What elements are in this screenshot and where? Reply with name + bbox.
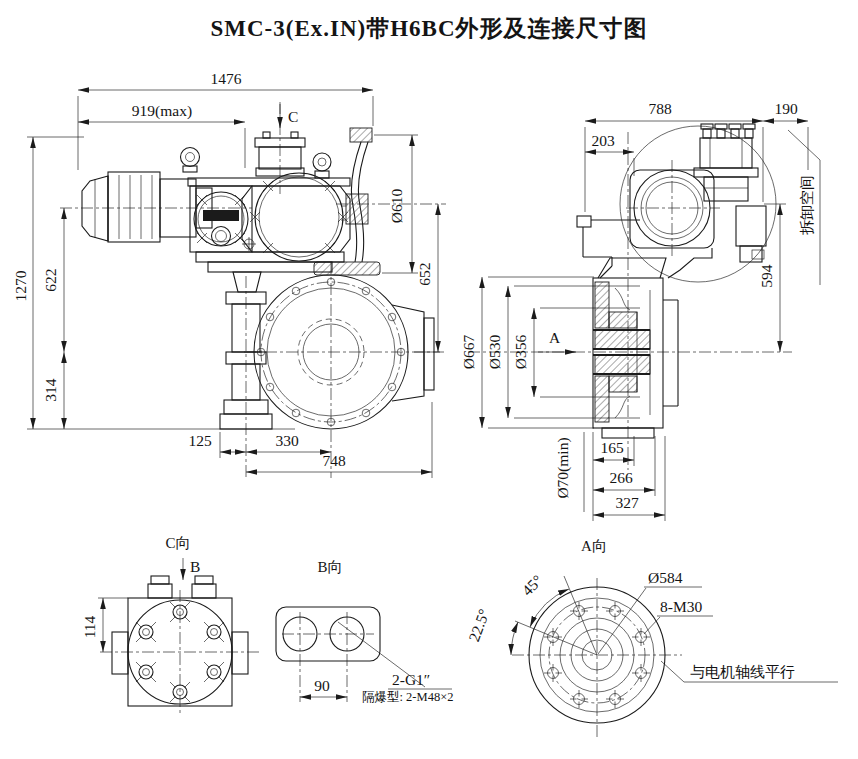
- dim-314: 314: [42, 378, 59, 402]
- dim-22-5deg: 22.5°: [465, 607, 492, 644]
- dim-530: Ø530: [486, 335, 503, 370]
- dim-667: Ø667: [460, 335, 477, 370]
- handwheel-grip: [314, 262, 380, 275]
- dim-266: 266: [609, 469, 633, 486]
- dim-356: Ø356: [512, 335, 529, 370]
- dim-125: 125: [188, 432, 212, 449]
- dim-90: 90: [314, 677, 330, 694]
- dim-165: 165: [600, 439, 624, 456]
- dim-114: 114: [81, 615, 98, 638]
- dim-45deg: 45°: [518, 571, 545, 598]
- section-c-label: C: [288, 108, 298, 125]
- dim-584: Ø584: [648, 569, 683, 586]
- view-c-label: C向: [165, 535, 190, 551]
- page-title: SMC-3(Ex.IN)带H6BC外形及连接尺寸图: [210, 16, 647, 41]
- handwheel-hub: [346, 194, 368, 224]
- dim-70-min: Ø70(min): [554, 437, 572, 498]
- gear-housing: [242, 186, 350, 252]
- dim-330: 330: [275, 432, 299, 449]
- axis-parallel-note: 与电机轴线平行: [690, 664, 795, 680]
- drawing-sheet: SMC-3(Ex.IN)带H6BC外形及连接尺寸图: [0, 0, 858, 759]
- section-b-label: B: [190, 558, 200, 575]
- bolt-spec: 8-M30: [660, 598, 702, 615]
- dim-610: Ø610: [388, 189, 405, 224]
- view-a: A向 45° 22.5° Ø584 8-M30 与电机轴线平行: [465, 538, 838, 738]
- dim-652: 652: [416, 262, 433, 285]
- side-view-dimensions: 788 190 203 拆卸空间 594 Ø667 Ø530 Ø356 A Ø7…: [460, 100, 820, 521]
- dim-622: 622: [42, 268, 59, 291]
- view-a-label: A向: [581, 538, 607, 554]
- section-a-label: A: [549, 329, 561, 346]
- dim-327: 327: [615, 494, 639, 511]
- flameproof-note: 隔爆型: 2-M48×2: [362, 690, 453, 704]
- lifting-eye: [181, 148, 200, 167]
- dim-190: 190: [774, 100, 798, 117]
- front-view: [27, 102, 446, 478]
- dim-594: 594: [758, 264, 775, 288]
- view-b: B向 90 2-G1″ 隔爆型: 2-M48×2: [276, 559, 453, 704]
- dim-919-max: 919(max): [132, 102, 192, 120]
- terminal-box-side: [700, 138, 752, 168]
- dim-1476: 1476: [211, 70, 242, 87]
- view-c: C向 B 114: [81, 535, 260, 714]
- dim-748: 748: [322, 452, 346, 469]
- dim-203: 203: [591, 132, 615, 149]
- view-b-label: B向: [317, 559, 342, 575]
- removal-space-note: 拆卸空间: [799, 175, 815, 235]
- dim-1270: 1270: [12, 270, 29, 301]
- dimension-drawing: SMC-3(Ex.IN)带H6BC外形及连接尺寸图: [0, 0, 858, 759]
- thread-spec: 2-G1″: [392, 671, 430, 688]
- brand-label: [203, 210, 239, 221]
- dim-788: 788: [648, 100, 672, 117]
